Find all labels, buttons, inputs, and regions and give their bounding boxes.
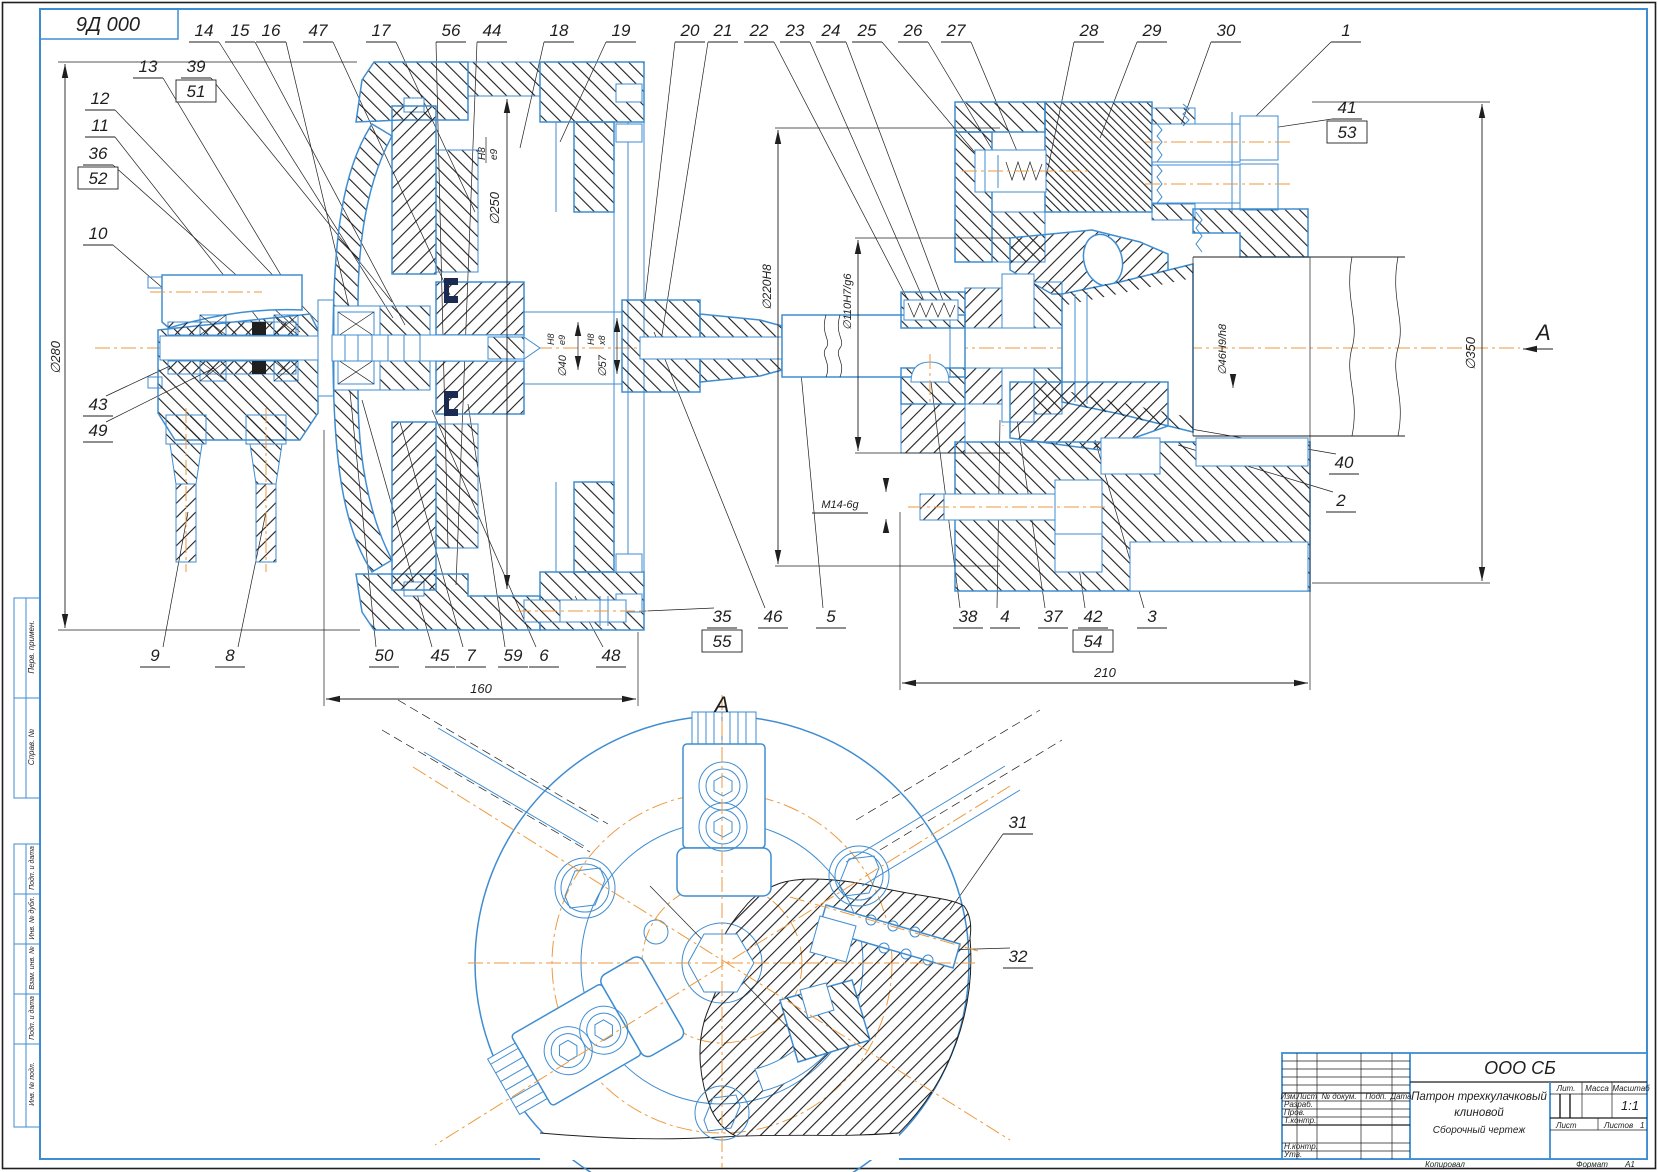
svg-text:46: 46 bbox=[764, 607, 783, 626]
svg-text:27: 27 bbox=[946, 21, 966, 40]
svg-text:20: 20 bbox=[680, 21, 700, 40]
svg-text:6: 6 bbox=[539, 646, 549, 665]
svg-text:Дата: Дата bbox=[1389, 1092, 1412, 1101]
svg-text:53: 53 bbox=[1338, 123, 1357, 142]
svg-text:Листов: Листов bbox=[1603, 1121, 1633, 1130]
svg-text:16: 16 bbox=[262, 21, 281, 40]
svg-text:Подп. и дата: Подп. и дата bbox=[28, 996, 36, 1040]
svg-text:43: 43 bbox=[89, 395, 108, 414]
svg-text:17: 17 bbox=[372, 21, 391, 40]
svg-text:9: 9 bbox=[150, 646, 160, 665]
svg-text:№ докум.: № докум. bbox=[1321, 1092, 1356, 1101]
svg-text:55: 55 bbox=[713, 632, 732, 651]
svg-text:35: 35 bbox=[713, 607, 732, 626]
svg-text:40: 40 bbox=[1335, 453, 1354, 472]
svg-text:37: 37 bbox=[1044, 607, 1063, 626]
svg-text:Т.контр.: Т.контр. bbox=[1284, 1116, 1316, 1125]
svg-text:Лист: Лист bbox=[1555, 1121, 1577, 1130]
svg-text:Перв. примен.: Перв. примен. bbox=[27, 620, 36, 673]
svg-text:210: 210 bbox=[1093, 665, 1116, 680]
svg-text:Масса: Масса bbox=[1585, 1084, 1609, 1093]
svg-text:51: 51 bbox=[187, 82, 206, 101]
svg-text:Патрон трехкулачковый: Патрон трехкулачковый bbox=[1411, 1091, 1547, 1103]
svg-text:7: 7 bbox=[466, 646, 476, 665]
svg-text:12: 12 bbox=[91, 89, 110, 108]
svg-text:14: 14 bbox=[195, 21, 214, 40]
svg-text:56: 56 bbox=[442, 21, 461, 40]
svg-text:Инв. № дубл.: Инв. № дубл. bbox=[28, 896, 36, 939]
svg-text:Масштаб: Масштаб bbox=[1612, 1084, 1650, 1093]
svg-text:11: 11 bbox=[91, 116, 109, 135]
svg-text:25: 25 bbox=[857, 21, 877, 40]
svg-text:24: 24 bbox=[821, 21, 841, 40]
svg-text:50: 50 bbox=[375, 646, 394, 665]
svg-text:Взам. инв. №: Взам. инв. № bbox=[29, 946, 36, 990]
svg-text:10: 10 bbox=[89, 224, 108, 243]
svg-text:5: 5 bbox=[826, 607, 836, 626]
svg-text:23: 23 bbox=[785, 21, 805, 40]
svg-text:Формат: Формат bbox=[1576, 1160, 1608, 1169]
svg-text:H8: H8 bbox=[586, 333, 596, 345]
svg-text:∅220H8: ∅220H8 bbox=[760, 264, 774, 310]
svg-text:59: 59 bbox=[504, 646, 523, 665]
svg-text:H8: H8 bbox=[546, 333, 556, 345]
svg-text:∅57: ∅57 bbox=[597, 354, 609, 377]
svg-text:1:1: 1:1 bbox=[1621, 1098, 1639, 1113]
svg-text:Утв.: Утв. bbox=[1283, 1150, 1302, 1159]
svg-text:15: 15 bbox=[231, 21, 250, 40]
svg-text:А1: А1 bbox=[1624, 1160, 1635, 1169]
svg-text:38: 38 bbox=[959, 607, 978, 626]
svg-text:48: 48 bbox=[602, 646, 621, 665]
svg-text:47: 47 bbox=[309, 21, 328, 40]
svg-text:М14-6g: М14-6g bbox=[821, 499, 859, 511]
svg-text:9Д 000: 9Д 000 bbox=[76, 14, 140, 36]
svg-text:1: 1 bbox=[1341, 21, 1350, 40]
svg-text:x8: x8 bbox=[597, 335, 607, 346]
svg-text:29: 29 bbox=[1142, 21, 1162, 40]
svg-text:21: 21 bbox=[713, 21, 733, 40]
svg-text:160: 160 bbox=[470, 681, 492, 696]
svg-text:ООО СБ: ООО СБ bbox=[1484, 1058, 1556, 1078]
svg-text:32: 32 bbox=[1009, 947, 1028, 966]
svg-text:клиновой: клиновой bbox=[1454, 1107, 1504, 1119]
svg-text:49: 49 bbox=[89, 421, 108, 440]
svg-text:3: 3 bbox=[1147, 607, 1157, 626]
svg-text:Лит.: Лит. bbox=[1556, 1084, 1576, 1093]
svg-text:19: 19 bbox=[612, 21, 631, 40]
svg-text:1: 1 bbox=[1640, 1121, 1644, 1130]
svg-text:Справ. №: Справ. № bbox=[27, 728, 36, 765]
svg-text:22: 22 bbox=[749, 21, 769, 40]
svg-text:Сборочный чертеж: Сборочный чертеж bbox=[1433, 1124, 1527, 1136]
svg-text:А: А bbox=[1534, 320, 1551, 345]
svg-text:4: 4 bbox=[1000, 607, 1009, 626]
svg-text:2: 2 bbox=[1335, 491, 1346, 510]
svg-text:44: 44 bbox=[483, 21, 502, 40]
svg-text:13: 13 bbox=[139, 57, 158, 76]
svg-text:Инв. № подл.: Инв. № подл. bbox=[28, 1062, 36, 1105]
svg-text:e9: e9 bbox=[557, 335, 567, 345]
svg-text:Подп. и дата: Подп. и дата bbox=[28, 846, 36, 890]
svg-text:А: А bbox=[713, 692, 730, 717]
svg-text:e9: e9 bbox=[489, 148, 500, 160]
svg-text:36: 36 bbox=[89, 144, 108, 163]
svg-text:31: 31 bbox=[1009, 813, 1028, 832]
svg-text:∅350: ∅350 bbox=[1463, 336, 1478, 370]
svg-text:∅280: ∅280 bbox=[48, 340, 63, 374]
svg-text:18: 18 bbox=[550, 21, 569, 40]
svg-text:28: 28 bbox=[1079, 21, 1099, 40]
svg-text:45: 45 bbox=[431, 646, 450, 665]
svg-text:54: 54 bbox=[1084, 632, 1103, 651]
svg-text:30: 30 bbox=[1217, 21, 1236, 40]
svg-text:Копировал: Копировал bbox=[1425, 1160, 1465, 1169]
svg-text:∅250: ∅250 bbox=[487, 191, 502, 225]
svg-text:∅40: ∅40 bbox=[557, 354, 569, 377]
svg-text:26: 26 bbox=[903, 21, 923, 40]
svg-text:∅46H9/h8: ∅46H9/h8 bbox=[1217, 323, 1229, 375]
svg-text:∅110H7/g6: ∅110H7/g6 bbox=[842, 273, 854, 330]
svg-text:Подп.: Подп. bbox=[1365, 1092, 1386, 1101]
svg-text:41: 41 bbox=[1338, 98, 1357, 117]
svg-text:39: 39 bbox=[187, 57, 206, 76]
svg-text:8: 8 bbox=[225, 646, 235, 665]
svg-text:52: 52 bbox=[89, 169, 108, 188]
svg-text:42: 42 bbox=[1084, 607, 1103, 626]
